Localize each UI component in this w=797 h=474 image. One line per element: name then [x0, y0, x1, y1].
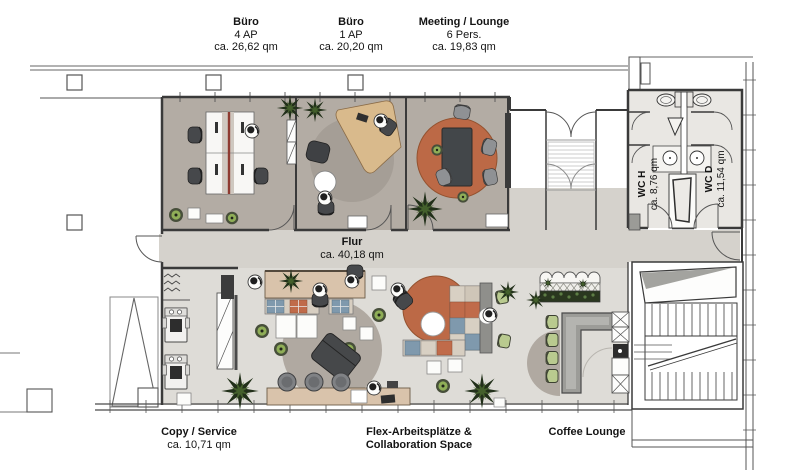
sideboard: [505, 113, 511, 188]
side-table: [314, 171, 336, 193]
plumbing-duct: [681, 92, 687, 174]
pouf-icon: [436, 379, 450, 393]
potted-plant-icon: [457, 191, 468, 202]
person-icon: [313, 283, 327, 297]
office-chair-icon: [188, 168, 202, 184]
room-area: ca. 20,20 qm: [291, 41, 411, 54]
room-capacity: 1 AP: [291, 29, 411, 42]
stairwell: [632, 262, 743, 409]
room-area: ca. 19,83 qm: [402, 41, 526, 54]
plant-icon: [526, 290, 546, 310]
potted-plant-icon: [431, 144, 442, 155]
pouf-icon: [255, 324, 269, 338]
room-name: WC H: [637, 144, 649, 224]
toilet-icon: [693, 94, 711, 106]
pouf-icon: [372, 308, 386, 322]
room-name: Copy / Service: [139, 426, 259, 439]
person-icon: [483, 308, 497, 322]
stool-icon: [278, 373, 296, 391]
room-name: Flur: [292, 236, 412, 249]
green-chair-icon: [546, 316, 558, 329]
shower-icon: [673, 178, 691, 222]
room-area: ca. 26,62 qm: [186, 41, 306, 54]
plant-icon: [407, 191, 442, 226]
person-icon: [245, 124, 259, 138]
person-icon: [318, 191, 332, 205]
room-capacity: 4 AP: [186, 29, 306, 42]
stool-icon: [332, 373, 350, 391]
plant-icon: [497, 281, 519, 303]
potted-plant-icon: [226, 212, 239, 225]
room-area: ca. 8,76 qm: [649, 144, 661, 224]
room-label-wc-d: WC D ca. 11,54 qm: [704, 139, 728, 219]
room-label-coffee-lounge: Coffee Lounge: [527, 426, 647, 439]
room-area: ca. 10,71 qm: [139, 439, 259, 452]
exterior-left-stair: [0, 297, 158, 412]
printer-icon: [163, 308, 190, 342]
room-label-wc-h: WC H ca. 8,76 qm: [637, 144, 661, 224]
floor-plan: Büro 4 AP ca. 26,62 qm Büro 1 AP ca. 20,…: [0, 0, 797, 474]
plant-icon: [543, 278, 554, 289]
pouf-icon: [274, 342, 288, 356]
room-name: Meeting / Lounge: [402, 16, 526, 29]
person-icon: [345, 274, 359, 288]
room-label-flex: Flex-Arbeitsplätze & Collaboration Space: [343, 426, 495, 451]
door-corridor-west: [136, 236, 162, 262]
room-name: WC D: [704, 139, 716, 219]
plant-icon: [578, 279, 589, 290]
room-name: Büro: [186, 16, 306, 29]
whiteboard: [221, 275, 234, 299]
room-capacity: 6 Pers.: [402, 29, 526, 42]
room-area: ca. 40,18 qm: [292, 249, 412, 262]
person-icon: [374, 114, 388, 128]
green-chair-icon: [497, 334, 511, 349]
room-label-meeting-lounge: Meeting / Lounge 6 Pers. ca. 19,83 qm: [402, 16, 526, 54]
potted-plant-icon: [169, 208, 183, 222]
chair-icon: [453, 104, 471, 120]
room-name: Büro: [291, 16, 411, 29]
office-chair-icon: [188, 127, 202, 143]
stool-icon: [305, 373, 323, 391]
room-area: ca. 11,54 qm: [716, 139, 728, 219]
room-name-line1: Flex-Arbeitsplätze &: [343, 426, 495, 439]
plant-icon: [303, 98, 327, 122]
room-label-flur: Flur ca. 40,18 qm: [292, 236, 412, 261]
green-chair-icon: [546, 370, 558, 383]
round-table: [421, 312, 445, 336]
printer-icon: [163, 355, 190, 389]
green-chair-icon: [546, 352, 558, 365]
office-chair-icon: [254, 168, 268, 184]
person-icon: [367, 381, 381, 395]
plant-icon: [221, 372, 258, 409]
plant-icon: [277, 95, 303, 121]
room-label-copy-service: Copy / Service ca. 10,71 qm: [139, 426, 259, 451]
room-label-buero-1ap: Büro 1 AP ca. 20,20 qm: [291, 16, 411, 54]
green-chair-icon: [546, 334, 558, 347]
room-label-buero-4ap: Büro 4 AP ca. 26,62 qm: [186, 16, 306, 54]
chair-icon: [482, 168, 499, 186]
toilet-icon: [657, 94, 675, 106]
person-icon: [248, 275, 262, 289]
plant-icon: [279, 269, 303, 293]
room-name: Coffee Lounge: [527, 426, 647, 439]
room-name-line2: Collaboration Space: [343, 439, 495, 452]
